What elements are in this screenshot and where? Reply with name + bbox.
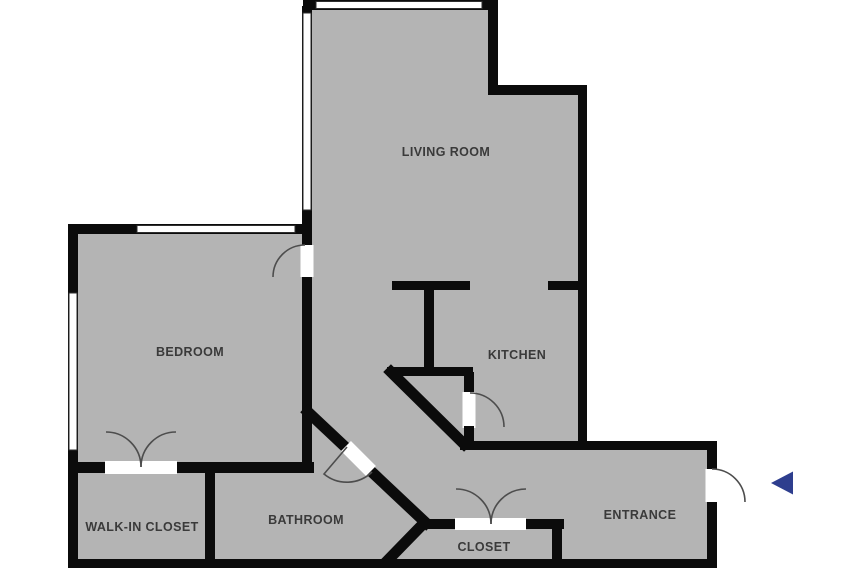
kitchen-peninsula-stem <box>424 288 434 372</box>
room-label-walk-in-closet: WALK-IN CLOSET <box>85 520 198 534</box>
closet-right-wall <box>552 524 562 564</box>
kitchen-door-wall-upper <box>464 372 474 394</box>
walk-in-closet-divider-wall <box>205 468 215 568</box>
kitchen-opening-stub-wall <box>548 281 578 290</box>
living-room-left-window <box>303 13 311 210</box>
room-label-closet: CLOSET <box>457 540 510 554</box>
bedroom-bottom-wall <box>68 462 314 473</box>
bedroom-left-window <box>69 293 77 450</box>
room-label-bathroom: BATHROOM <box>268 513 344 527</box>
floorplan-svg: LIVING ROOM BEDROOM KITCHEN WALK-IN CLOS… <box>0 0 852 568</box>
front-door-gap <box>706 469 719 502</box>
bedroom-door-gap <box>301 245 314 277</box>
room-label-entrance: ENTRANCE <box>604 508 677 522</box>
bedroom-top-window <box>137 226 295 233</box>
kitchen-door-gap <box>463 392 476 428</box>
room-label-living-room: LIVING ROOM <box>402 145 490 159</box>
floorplan-canvas: LIVING ROOM BEDROOM KITCHEN WALK-IN CLOS… <box>0 0 852 568</box>
entrance-right-wall <box>707 441 717 568</box>
living-room-top-window <box>316 2 482 9</box>
living-room-right-upper-wall <box>488 0 498 92</box>
room-label-kitchen: KITCHEN <box>488 348 546 362</box>
entrance-top-wall <box>460 441 717 450</box>
room-label-bedroom: BEDROOM <box>156 345 224 359</box>
kitchen-right-wall <box>578 85 587 446</box>
living-room-step-wall <box>488 85 587 95</box>
entrance-arrow-icon <box>771 472 793 495</box>
